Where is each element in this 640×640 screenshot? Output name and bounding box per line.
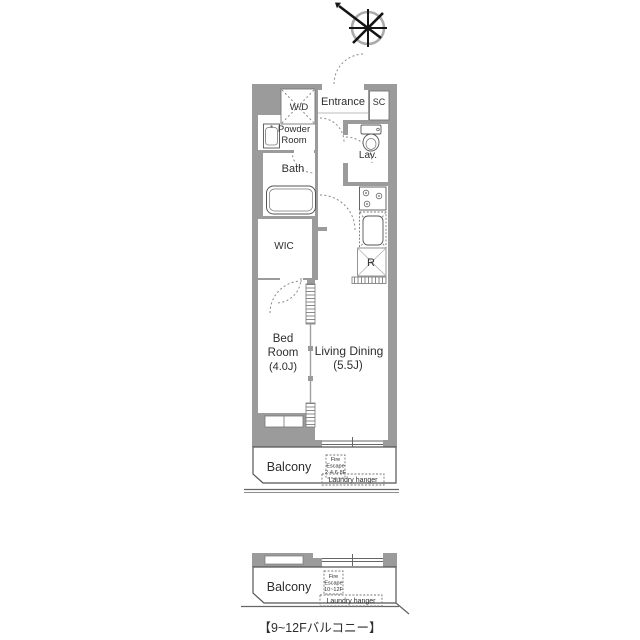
label-bath: Bath [282,163,305,175]
label-washer-dryer: W/D [290,102,309,113]
label-balcony-main: Balcony [267,460,312,474]
label-shoe-closet: SC [373,97,386,107]
kitchen-stove-icon [360,187,387,210]
compass-north-arrow-icon [335,3,387,48]
label-fire-escape-main-3: 2·4·6·8F [325,470,347,476]
label-bedroom-2: Room [268,347,299,359]
label-laundry-hanger-detail: Laundry hanger [326,598,376,605]
toilet-icon [361,125,381,151]
label-bedroom-1: Bed [273,333,293,345]
label-living-dining-size: (5.5J) [333,360,363,372]
label-entrance: Entrance [321,96,365,108]
label-laundry-hanger-main: Laundry hanger [328,477,378,484]
label-powder-room-2: Room [281,135,306,146]
label-balcony-detail: Balcony [267,580,312,594]
label-refrigerator: R [367,257,375,269]
label-wic: WIC [274,241,293,252]
floor-plan-page: Entrance SC W/D Powder Room Lav. Bath WI… [0,0,640,640]
label-fire-escape-detail-3: 10~12F [324,587,343,593]
label-fire-escape-detail-2: Escape [324,581,342,587]
bathtub-icon [267,186,316,214]
label-powder-room-1: Powder [278,124,310,135]
label-lavatory: Lav. [359,150,377,161]
caption-balcony-floors: 【9~12Fバルコニー】 [258,621,381,635]
label-living-dining: Living Dining [315,344,384,358]
label-bedroom-size: (4.0J) [269,361,297,373]
floor-plan-canvas: Entrance SC W/D Powder Room Lav. Bath WI… [0,0,640,640]
label-fire-escape-main-2: Escape [326,464,344,470]
bedroom-window [265,416,303,427]
label-fire-escape-detail-1: Fire [329,574,338,580]
label-fire-escape-main-1: Fire [331,457,340,463]
